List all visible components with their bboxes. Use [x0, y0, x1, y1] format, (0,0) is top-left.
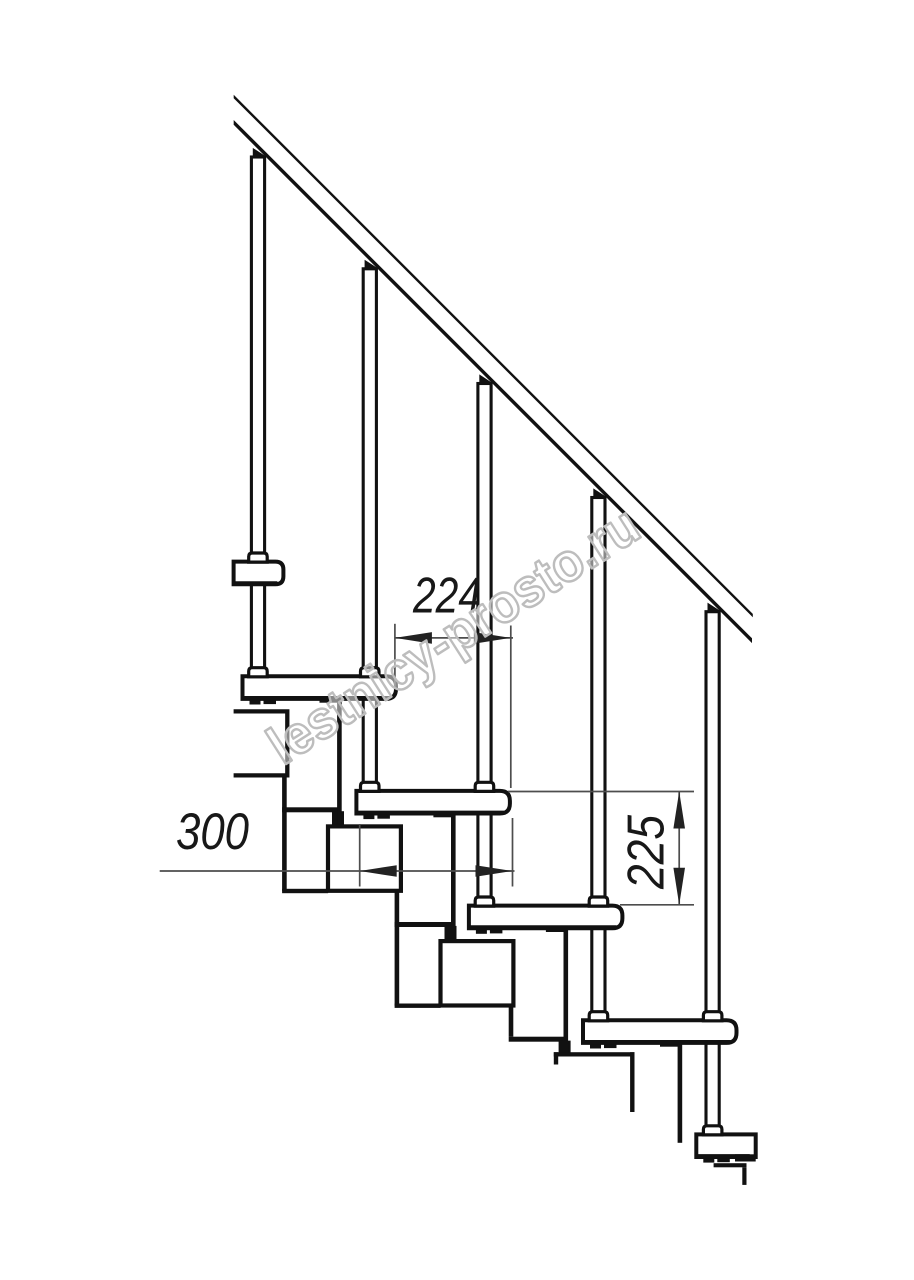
svg-text:225: 225 — [617, 815, 675, 890]
svg-text:300: 300 — [176, 802, 249, 860]
